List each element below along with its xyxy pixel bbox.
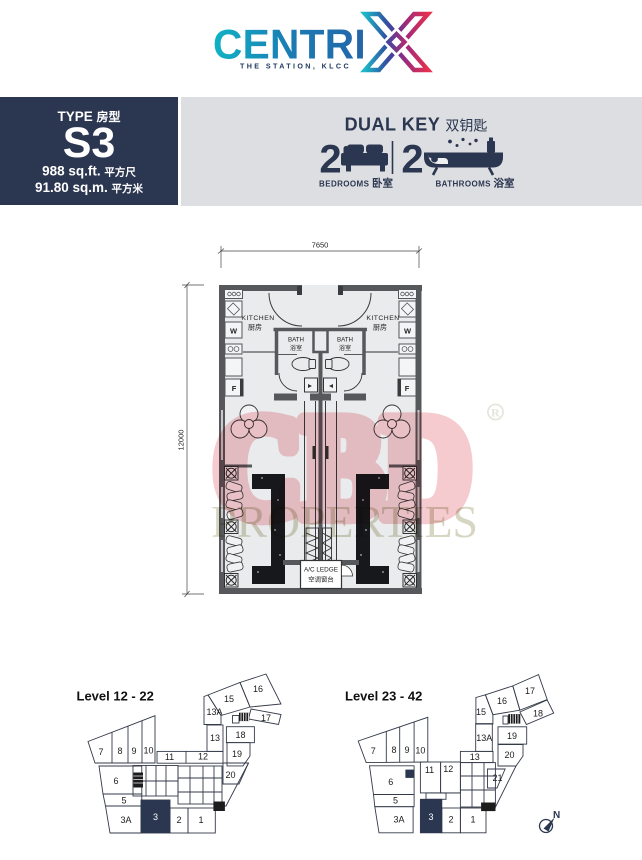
svg-text:19: 19 xyxy=(232,749,242,759)
svg-text:13A: 13A xyxy=(476,733,492,743)
svg-text:KITCHEN: KITCHEN xyxy=(241,315,274,322)
svg-text:THE STATION, KLCC: THE STATION, KLCC xyxy=(240,62,351,71)
svg-text:10: 10 xyxy=(415,746,425,756)
svg-text:空调窗台: 空调窗台 xyxy=(308,575,334,584)
svg-text:2: 2 xyxy=(176,815,181,825)
svg-text:20: 20 xyxy=(225,770,235,780)
svg-text:PROPERTIES: PROPERTIES xyxy=(211,496,478,547)
svg-text:7: 7 xyxy=(98,747,103,757)
svg-text:W: W xyxy=(404,327,412,336)
svg-text:3A: 3A xyxy=(393,815,404,825)
svg-text:11: 11 xyxy=(425,765,434,775)
svg-text:2: 2 xyxy=(319,138,341,182)
svg-text:Level 23 - 42: Level 23 - 42 xyxy=(345,689,422,704)
svg-text:2: 2 xyxy=(401,138,423,182)
svg-text:BATH: BATH xyxy=(337,337,353,344)
svg-text:3A: 3A xyxy=(120,815,131,825)
svg-text:18: 18 xyxy=(235,730,245,740)
svg-text:18: 18 xyxy=(533,709,543,719)
svg-text:Level 12 - 22: Level 12 - 22 xyxy=(77,689,154,704)
svg-text:10: 10 xyxy=(143,746,153,756)
svg-text:7: 7 xyxy=(371,746,376,756)
svg-text:7650: 7650 xyxy=(312,241,329,250)
svg-text:浴室: 浴室 xyxy=(290,344,302,352)
svg-text:浴室: 浴室 xyxy=(339,344,351,352)
svg-text:13A: 13A xyxy=(206,707,222,717)
svg-text:3: 3 xyxy=(428,812,433,822)
svg-text:12000: 12000 xyxy=(177,430,186,451)
svg-text:17: 17 xyxy=(525,686,535,696)
svg-text:S3: S3 xyxy=(63,119,116,167)
svg-text:6: 6 xyxy=(113,776,118,786)
svg-text:20: 20 xyxy=(504,750,514,760)
svg-text:W: W xyxy=(230,327,238,336)
svg-text:N: N xyxy=(553,810,560,821)
svg-text:16: 16 xyxy=(497,696,507,706)
svg-text:1: 1 xyxy=(198,815,203,825)
svg-text:8: 8 xyxy=(117,746,122,756)
svg-text:16: 16 xyxy=(253,684,263,694)
svg-text:12: 12 xyxy=(443,764,453,774)
svg-text:6: 6 xyxy=(388,777,393,787)
svg-text:17: 17 xyxy=(261,713,271,723)
svg-text:13: 13 xyxy=(210,733,220,743)
svg-text:5: 5 xyxy=(121,796,126,806)
svg-text:13: 13 xyxy=(470,752,480,762)
svg-text:15: 15 xyxy=(476,707,486,717)
svg-text:8: 8 xyxy=(391,745,396,755)
svg-text:2: 2 xyxy=(448,815,453,825)
svg-text:15: 15 xyxy=(224,694,234,704)
svg-text:988 sq.ft. 平方尺: 988 sq.ft. 平方尺 xyxy=(42,164,136,179)
svg-text:CENTRI: CENTRI xyxy=(213,21,366,68)
svg-text:5: 5 xyxy=(393,796,398,806)
svg-text:BATH: BATH xyxy=(288,337,304,344)
svg-text:11: 11 xyxy=(165,752,174,762)
svg-text:A/C LEDGE: A/C LEDGE xyxy=(304,567,338,574)
svg-text:1: 1 xyxy=(470,815,475,825)
svg-text:91.80 sq.m. 平方米: 91.80 sq.m. 平方米 xyxy=(35,180,144,195)
svg-text:9: 9 xyxy=(404,745,409,755)
svg-text:R: R xyxy=(491,406,500,420)
svg-text:DUAL KEY 双钥匙: DUAL KEY 双钥匙 xyxy=(345,115,488,135)
svg-text:12: 12 xyxy=(198,752,208,762)
svg-text:KITCHEN: KITCHEN xyxy=(366,315,399,322)
svg-text:19: 19 xyxy=(507,731,517,741)
svg-text:厨房: 厨房 xyxy=(373,323,387,332)
svg-text:9: 9 xyxy=(131,746,136,756)
svg-text:3: 3 xyxy=(153,812,158,822)
svg-text:厨房: 厨房 xyxy=(248,323,262,332)
svg-text:21: 21 xyxy=(492,773,502,783)
